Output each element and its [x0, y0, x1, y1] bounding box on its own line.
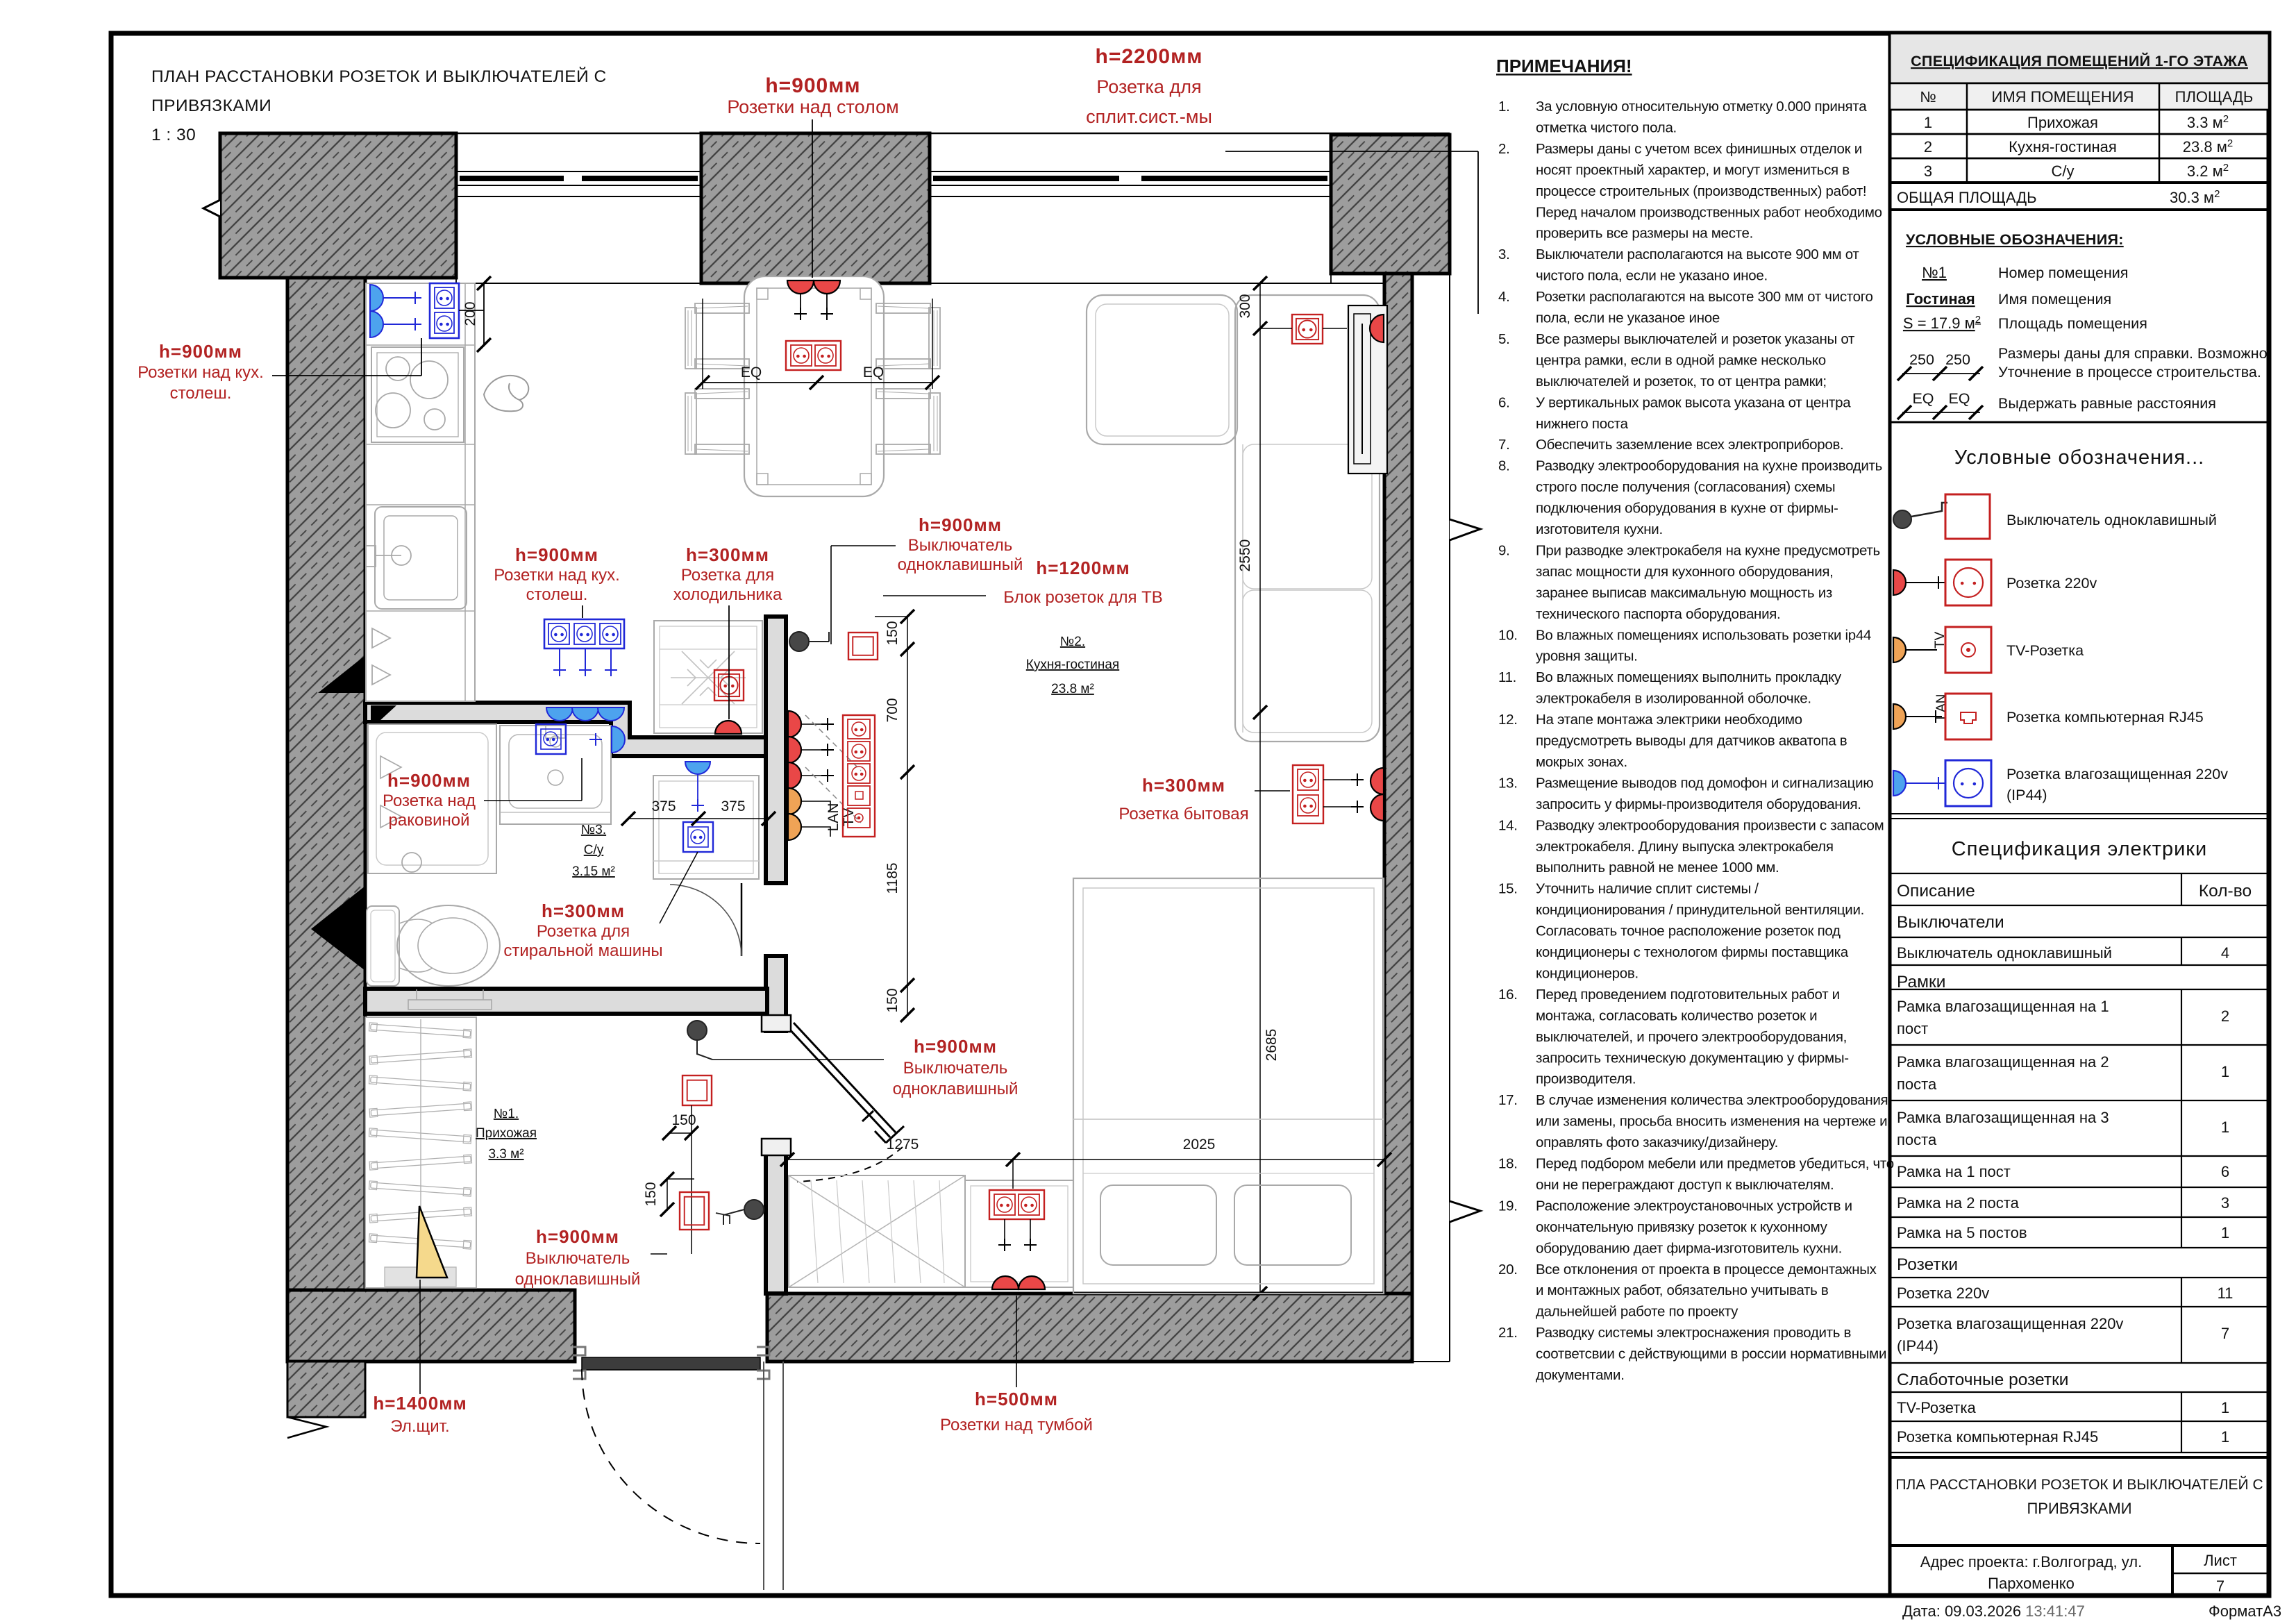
- svg-text:оборудованию дает фирма-изгото: оборудованию дает фирма-изготовитель кух…: [1536, 1240, 1842, 1256]
- svg-text:нижнего поста: нижнего поста: [1536, 416, 1629, 432]
- svg-text:250: 250: [1909, 351, 1934, 368]
- svg-text:13.: 13.: [1498, 775, 1518, 791]
- svg-text:LAN: LAN: [826, 803, 841, 832]
- svg-text:Розетка влагозащищенная 220v: Розетка влагозащищенная 220v: [2006, 766, 2228, 782]
- svg-text:Розетки над тумбой: Розетки над тумбой: [940, 1416, 1093, 1434]
- svg-text:У вертикальных рамок высота ук: У вертикальных рамок высота указана от ц…: [1536, 394, 1851, 410]
- svg-text:одноклавишный: одноклавишный: [515, 1270, 641, 1289]
- svg-text:Площадь помещения: Площадь помещения: [1998, 315, 2147, 332]
- svg-text:19.: 19.: [1498, 1198, 1518, 1214]
- svg-text:поста: поста: [1897, 1131, 1937, 1148]
- svg-text:Рамка на 1 пост: Рамка на 1 пост: [1897, 1163, 2011, 1180]
- svg-text:Выключатель одноклавишный: Выключатель одноклавишный: [1897, 944, 2112, 962]
- svg-text:Эл.щит.: Эл.щит.: [390, 1417, 449, 1436]
- svg-text:h=300мм: h=300мм: [542, 901, 625, 921]
- svg-text:ПРИВЯЗКАМИ: ПРИВЯЗКАМИ: [2027, 1500, 2131, 1517]
- svg-text:23.8 м2: 23.8 м2: [2183, 137, 2233, 156]
- svg-text:Кухня-гостиная: Кухня-гостиная: [1026, 658, 1119, 672]
- svg-text:h=900мм: h=900мм: [536, 1226, 619, 1247]
- svg-text:10.: 10.: [1498, 627, 1518, 643]
- svg-text:Рамка на 2 поста: Рамка на 2 поста: [1897, 1194, 2020, 1212]
- svg-text:стиральной машины: стиральной машины: [503, 941, 662, 960]
- svg-text:изготовителя кухни.: изготовителя кухни.: [1536, 521, 1663, 537]
- svg-text:ПРИМЕЧАНИЯ!: ПРИМЕЧАНИЯ!: [1496, 56, 1632, 76]
- svg-text:выключателей и розеток, то от: выключателей и розеток, то от центра рам…: [1536, 374, 1827, 390]
- svg-text:запросить техническую документ: запросить техническую документацию у фир…: [1536, 1050, 1849, 1066]
- svg-text:ОБЩАЯ ПЛОЩАДЬ: ОБЩАЯ ПЛОЩАДЬ: [1897, 189, 2037, 206]
- svg-text:или замены, просьба вносить из: или замены, просьба вносить изменения на…: [1536, 1114, 1887, 1130]
- svg-text:Выключатели располагаются на в: Выключатели располагаются на высоте 900 …: [1536, 246, 1859, 262]
- svg-text:150: 150: [643, 1182, 659, 1206]
- svg-text:Розетка над: Розетка над: [383, 792, 476, 810]
- svg-text:УСЛОВНЫЕ ОБОЗНАЧЕНИЯ:: УСЛОВНЫЕ ОБОЗНАЧЕНИЯ:: [1906, 231, 2124, 248]
- svg-text:С/у: С/у: [584, 843, 604, 857]
- svg-text:2685: 2685: [1264, 1029, 1280, 1062]
- svg-text:6.: 6.: [1498, 394, 1510, 410]
- svg-text:ПЛА РАССТАНОВКИ РОЗЕТОК И ВЫКЛ: ПЛА РАССТАНОВКИ РОЗЕТОК И ВЫКЛЮЧАТЕЛЕЙ С: [1895, 1476, 2263, 1493]
- svg-text:проверить все размеры на месте: проверить все размеры на месте.: [1536, 226, 1753, 242]
- svg-text:производителя.: производителя.: [1536, 1071, 1636, 1087]
- svg-text:6: 6: [2221, 1163, 2229, 1180]
- svg-text:8.: 8.: [1498, 458, 1510, 474]
- svg-text:h=900мм: h=900мм: [765, 74, 860, 97]
- svg-text:Все отклонения от проекта в пр: Все отклонения от проекта в процессе дем…: [1536, 1262, 1877, 1278]
- svg-text:Розетка для: Розетка для: [681, 566, 774, 585]
- svg-text:Расположение электроустановочн: Расположение электроустановочных устройс…: [1536, 1198, 1852, 1214]
- svg-text:Перед началом производственных: Перед началом производственных работ нео…: [1536, 204, 1882, 220]
- svg-text:15.: 15.: [1498, 881, 1518, 897]
- svg-text:h=900мм: h=900мм: [914, 1036, 997, 1057]
- svg-text:TV-Розетка: TV-Розетка: [1897, 1399, 1976, 1416]
- svg-text:2: 2: [2221, 1007, 2229, 1025]
- svg-text:Размеры даны для справки. Возм: Размеры даны для справки. Возможно: [1998, 345, 2268, 362]
- svg-text:23.8 м²: 23.8 м²: [1051, 682, 1094, 696]
- svg-text:№: №: [1920, 88, 1936, 106]
- svg-text:Размещение выводов под домофон: Размещение выводов под домофон и сигнали…: [1536, 775, 1873, 791]
- svg-text:250: 250: [1945, 351, 1970, 368]
- svg-text:Имя помещения: Имя помещения: [1998, 291, 2111, 308]
- svg-text:процессе строительных (произво: процессе строительных (производственных)…: [1536, 183, 1866, 199]
- svg-text:700: 700: [885, 698, 900, 722]
- svg-text:Разводку системы электроснажен: Разводку системы электроснажения проводи…: [1536, 1325, 1851, 1341]
- svg-text:одноклавишный: одноклавишный: [898, 555, 1023, 574]
- svg-text:S = 17.9 м2: S = 17.9 м2: [1903, 314, 1981, 332]
- svg-text:150: 150: [885, 988, 900, 1012]
- svg-text:Выключатель: Выключатель: [908, 536, 1013, 555]
- svg-text:монтажа, согласовать количеств: монтажа, согласовать количество розеток …: [1536, 1007, 1817, 1023]
- svg-text:EQ: EQ: [863, 365, 884, 380]
- svg-text:TV-Розетка: TV-Розетка: [2006, 642, 2084, 659]
- svg-text:Уточнение в процессе строитель: Уточнение в процессе строительства.: [1998, 364, 2261, 380]
- svg-text:Розетка компьютерная RJ45: Розетка компьютерная RJ45: [2006, 709, 2204, 726]
- svg-text:подключения оборудования в кух: подключения оборудования в кухне от фирм…: [1536, 501, 1838, 517]
- svg-text:кондиционеров.: кондиционеров.: [1536, 965, 1639, 981]
- svg-text:3.15 м²: 3.15 м²: [572, 864, 615, 879]
- svg-text:пост: пост: [1897, 1020, 1928, 1037]
- svg-text:3: 3: [1924, 162, 1932, 180]
- svg-text:18.: 18.: [1498, 1156, 1518, 1172]
- svg-text:выключателей, и прочего электр: выключателей, и прочего электрооборудова…: [1536, 1029, 1847, 1045]
- svg-text:носят проектный характер, и мо: носят проектный характер, и могут измени…: [1536, 162, 1850, 178]
- svg-text:раковиной: раковиной: [389, 811, 470, 830]
- svg-text:Розетка бытовая: Розетка бытовая: [1118, 805, 1248, 823]
- svg-text:1: 1: [2221, 1224, 2229, 1241]
- svg-text:h=900мм: h=900мм: [159, 341, 242, 362]
- svg-text:1 : 30: 1 : 30: [151, 126, 196, 144]
- svg-text:h=1400мм: h=1400мм: [373, 1393, 467, 1414]
- svg-text:1: 1: [2221, 1119, 2229, 1136]
- svg-text:h=900мм: h=900мм: [387, 770, 471, 791]
- svg-text:7: 7: [2221, 1325, 2229, 1342]
- svg-text:окончательную привязку розеток: окончательную привязку розеток к кухонно…: [1536, 1219, 1828, 1235]
- svg-text:11: 11: [2218, 1284, 2234, 1302]
- svg-text:строго после получения (соглас: строго после получения (согласования) сх…: [1536, 479, 1835, 495]
- svg-text:Рамка на 5 постов: Рамка на 5 постов: [1897, 1224, 2027, 1241]
- svg-text:2: 2: [1924, 138, 1932, 156]
- svg-text:3.3 м²: 3.3 м²: [488, 1147, 523, 1162]
- svg-text:14.: 14.: [1498, 817, 1518, 833]
- svg-text:Спецификация электрики: Спецификация электрики: [1952, 838, 2207, 860]
- svg-text:12.: 12.: [1498, 712, 1518, 728]
- svg-text:3.: 3.: [1498, 246, 1510, 262]
- svg-text:выполнить равной не менее 1000: выполнить равной не менее 1000 мм.: [1536, 860, 1779, 876]
- svg-text:Перед проведением подготовител: Перед проведением подготовительных работ…: [1536, 987, 1840, 1003]
- svg-text:Рамка влагозащищенная на 3: Рамка влагозащищенная на 3: [1897, 1109, 2109, 1126]
- svg-text:Выключатели: Выключатели: [1897, 913, 2004, 932]
- svg-text:Размеры даны с учетом всех фин: Размеры даны с учетом всех финишных отде…: [1536, 141, 1862, 157]
- svg-text:Розетки располагаются на высот: Розетки располагаются на высоте 300 мм о…: [1536, 289, 1873, 305]
- svg-text:(IP44): (IP44): [2006, 787, 2047, 803]
- svg-text:столеш.: столеш.: [526, 585, 588, 604]
- svg-text:375: 375: [651, 798, 676, 814]
- svg-text:9.: 9.: [1498, 542, 1510, 558]
- svg-text:1: 1: [2221, 1399, 2229, 1416]
- svg-text:1185: 1185: [885, 862, 900, 894]
- svg-text:В случае изменения количества: В случае изменения количества электрообо…: [1536, 1092, 1888, 1108]
- svg-text:столеш.: столеш.: [170, 384, 232, 403]
- svg-text:Слаботочные розетки: Слаботочные розетки: [1897, 1371, 2068, 1389]
- svg-text:h=2200мм: h=2200мм: [1096, 45, 1203, 68]
- svg-text:3.3 м2: 3.3 м2: [2187, 113, 2229, 131]
- svg-text:Розетка 220v: Розетка 220v: [1897, 1284, 1989, 1302]
- svg-text:Условные обозначения...: Условные обозначения...: [1954, 446, 2204, 469]
- svg-text:мокрых зонах.: мокрых зонах.: [1536, 754, 1627, 770]
- svg-text:отметка чистого пола.: отметка чистого пола.: [1536, 119, 1677, 135]
- svg-text:Розетка для: Розетка для: [537, 922, 630, 941]
- svg-text:EQ: EQ: [741, 365, 762, 380]
- svg-text:3: 3: [2221, 1194, 2229, 1212]
- svg-text:200: 200: [462, 301, 478, 326]
- svg-text:1275: 1275: [887, 1137, 919, 1153]
- svg-text:№3.: №3.: [581, 823, 606, 837]
- svg-text:пола, если не указаное иное: пола, если не указаное иное: [1536, 310, 1720, 326]
- svg-text:2.: 2.: [1498, 141, 1510, 157]
- svg-text:(IP44): (IP44): [1897, 1337, 1938, 1355]
- svg-text:ИМЯ ПОМЕЩЕНИЯ: ИМЯ ПОМЕЩЕНИЯ: [1992, 88, 2134, 106]
- svg-text:Выключатель: Выключатель: [903, 1059, 1008, 1078]
- svg-text:7.: 7.: [1498, 437, 1510, 453]
- svg-text:№1.: №1.: [494, 1107, 519, 1121]
- svg-text:3.2 м2: 3.2 м2: [2187, 162, 2229, 180]
- svg-text:заранее выписав максимальную м: заранее выписав максимальную мощность из: [1536, 585, 1832, 601]
- svg-text:1: 1: [2221, 1428, 2229, 1446]
- svg-text:h=1200мм: h=1200мм: [1036, 558, 1130, 578]
- svg-text:центра рамки, если в одной рам: центра рамки, если в одной рамке несколь…: [1536, 352, 1826, 368]
- svg-text:№2.: №2.: [1060, 635, 1085, 649]
- svg-text:30.3 м2: 30.3 м2: [2170, 188, 2220, 206]
- svg-text:Розетки над кух.: Розетки над кух.: [494, 566, 620, 585]
- svg-text:Розетка для: Розетка для: [1096, 76, 1201, 97]
- svg-text:Выдержать равные расстояния: Выдержать равные расстояния: [1998, 395, 2216, 412]
- svg-text:Номер помещения: Номер помещения: [1998, 265, 2128, 281]
- svg-text:запросить у фирмы-производител: запросить у фирмы-производителя оборудов…: [1536, 796, 1861, 812]
- svg-text:7: 7: [2216, 1577, 2224, 1595]
- svg-text:они не переграждают доступ к в: они не переграждают доступ к выключателя…: [1536, 1177, 1834, 1193]
- svg-text:одноклавишный: одноклавишный: [893, 1080, 1019, 1098]
- svg-text:Разводку электрооборудования н: Разводку электрооборудования на кухне пр…: [1536, 458, 1882, 474]
- svg-text:17.: 17.: [1498, 1092, 1518, 1108]
- svg-text:Блок розеток для ТВ: Блок розеток для ТВ: [1003, 588, 1163, 607]
- svg-text:уровня защиты.: уровня защиты.: [1536, 648, 1638, 664]
- svg-text:кондиционирования / принудител: кондиционирования / принудительной венти…: [1536, 902, 1864, 918]
- svg-text:ФорматА3: ФорматА3: [2209, 1602, 2281, 1620]
- svg-text:Розетки: Розетки: [1897, 1255, 1958, 1274]
- svg-text:5.: 5.: [1498, 331, 1510, 347]
- svg-text:11.: 11.: [1498, 669, 1516, 685]
- svg-text:Рамка влагозащищенная на 1: Рамка влагозащищенная на 1: [1897, 998, 2109, 1015]
- svg-text:375: 375: [721, 798, 745, 814]
- svg-text:h=300мм: h=300мм: [1142, 775, 1225, 796]
- svg-text:2025: 2025: [1183, 1137, 1216, 1153]
- svg-text:Пархоменко: Пархоменко: [1988, 1575, 2075, 1592]
- svg-text:№1: №1: [1922, 264, 1947, 281]
- svg-text:20.: 20.: [1498, 1262, 1518, 1278]
- svg-text:h=900мм: h=900мм: [515, 544, 598, 565]
- svg-text:запас мощности для кухонного о: запас мощности для кухонного оборудовани…: [1536, 564, 1834, 580]
- svg-text:поста: поста: [1897, 1075, 1937, 1093]
- svg-text:h=500мм: h=500мм: [975, 1389, 1058, 1409]
- svg-text:21.: 21.: [1498, 1325, 1518, 1341]
- svg-text:Все размеры выключателей и роз: Все размеры выключателей и розеток указа…: [1536, 331, 1855, 347]
- svg-text:Разводку электрооборудования п: Разводку электрооборудования произвести …: [1536, 817, 1884, 833]
- svg-text:Описание: Описание: [1897, 882, 1975, 901]
- svg-text:150: 150: [885, 621, 900, 645]
- svg-text:Гостиная: Гостиная: [1906, 290, 1975, 308]
- svg-text:Дата: 09.03.2026 13:41:47: Дата: 09.03.2026 13:41:47: [1902, 1602, 2085, 1620]
- svg-text:чистого пола, если не указано: чистого пола, если не указано иное.: [1536, 268, 1768, 284]
- svg-text:кондиционеры с технологом фирм: кондиционеры с технологом фирмы поставщи…: [1536, 944, 1849, 960]
- svg-text:Розетки над столом: Розетки над столом: [727, 97, 898, 117]
- svg-text:Во влажных помещениях использо: Во влажных помещениях использовать розет…: [1536, 627, 1871, 643]
- svg-text:оправлять фото заказчику/дизай: оправлять фото заказчику/дизайнеру.: [1536, 1135, 1778, 1150]
- svg-text:Кол-во: Кол-во: [2199, 882, 2252, 901]
- svg-text:16.: 16.: [1498, 987, 1518, 1003]
- svg-text:холодильника: холодильника: [673, 585, 782, 604]
- svg-text:Обеспечить заземление всех эле: Обеспечить заземление всех электроприбор…: [1536, 437, 1843, 453]
- svg-text:Выключатель: Выключатель: [526, 1249, 630, 1268]
- svg-text:Кухня-гостиная: Кухня-гостиная: [2009, 138, 2117, 156]
- svg-text:предусмотреть выводы для датчи: предусмотреть выводы для датчиков аквато…: [1536, 733, 1847, 749]
- svg-text:При разводке электрокабеля на: При разводке электрокабеля на кухне пред…: [1536, 542, 1880, 558]
- svg-text:Рамка влагозащищенная на 2: Рамка влагозащищенная на 2: [1897, 1053, 2109, 1071]
- svg-text:Согласовать точное расположени: Согласовать точное расположение розеток …: [1536, 923, 1841, 939]
- svg-text:Адрес проекта: г.Волгоград, ул: Адрес проекта: г.Волгоград, ул.: [1920, 1553, 2142, 1571]
- svg-text:4.: 4.: [1498, 289, 1510, 305]
- svg-text:ПЛАН РАССТАНОВКИ РОЗЕТОК И ВЫК: ПЛАН РАССТАНОВКИ РОЗЕТОК И ВЫКЛЮЧАТЕЛЕЙ …: [151, 67, 607, 86]
- svg-text:документами.: документами.: [1536, 1367, 1625, 1383]
- svg-text:ПРИВЯЗКАМИ: ПРИВЯЗКАМИ: [151, 97, 271, 115]
- svg-text:электрокабеля. Длину выпуска э: электрокабеля. Длину выпуска электрокабе…: [1536, 839, 1834, 855]
- svg-text:LAN: LAN: [1934, 694, 1949, 720]
- svg-text:электрокабеля в изолированной: электрокабеля в изолированной оболочке.: [1536, 691, 1811, 707]
- svg-text:Уточнить наличие сплит системы: Уточнить наличие сплит системы /: [1536, 881, 1759, 897]
- svg-text:Перед подбором мебели или пред: Перед подбором мебели или предметов убед…: [1536, 1156, 1894, 1172]
- svg-text:соответсвии с действующими в р: соответсвии с действующими в россии норм…: [1536, 1346, 1886, 1362]
- svg-text:На этапе монтажа электрики нео: На этапе монтажа электрики необходимо: [1536, 712, 1802, 728]
- svg-text:1: 1: [1924, 114, 1932, 131]
- svg-text:и монтажных работ, обязательно: и монтажных работ, обязательно учитывать…: [1536, 1282, 1829, 1298]
- svg-text:h=300мм: h=300мм: [686, 544, 769, 565]
- svg-text:Розетка компьютерная RJ45: Розетка компьютерная RJ45: [1897, 1428, 2098, 1446]
- svg-text:дальнейшей работе по проекту: дальнейшей работе по проекту: [1536, 1304, 1738, 1320]
- svg-text:4: 4: [2221, 944, 2229, 962]
- svg-text:h=900мм: h=900мм: [919, 514, 1002, 535]
- svg-text:ПЛОЩАДЬ: ПЛОЩАДЬ: [2175, 88, 2254, 106]
- svg-text:Лист: Лист: [2204, 1552, 2237, 1569]
- svg-text:Розетка 220v: Розетка 220v: [2006, 575, 2097, 592]
- svg-text:С/у: С/у: [2052, 162, 2075, 180]
- svg-text:Прихожая: Прихожая: [2027, 114, 2098, 131]
- svg-text:Розетки над кух.: Розетки над кух.: [137, 363, 264, 382]
- svg-text:2550: 2550: [1237, 539, 1253, 572]
- svg-text:сплит.сист.-мы: сплит.сист.-мы: [1086, 106, 1212, 127]
- svg-text:Прихожая: Прихожая: [476, 1126, 537, 1141]
- svg-text:Выключатель одноклавишный: Выключатель одноклавишный: [2006, 512, 2217, 528]
- svg-text:СПЕЦИФИКАЦИЯ ПОМЕЩЕНИЙ 1-ГО ЭТ: СПЕЦИФИКАЦИЯ ПОМЕЩЕНИЙ 1-ГО ЭТАЖА: [1911, 52, 2248, 69]
- svg-text:Во влажных помещениях выполнит: Во влажных помещениях выполнить прокладк…: [1536, 669, 1842, 685]
- svg-text:EQ: EQ: [1948, 390, 1970, 407]
- svg-text:300: 300: [1237, 294, 1253, 318]
- svg-text:технического паспорта оборудов: технического паспорта оборудования.: [1536, 606, 1780, 622]
- svg-text:EQ: EQ: [1912, 390, 1934, 407]
- svg-text:1: 1: [2221, 1063, 2229, 1080]
- svg-text:За условную относительную отме: За условную относительную отметку 0.000 …: [1536, 99, 1867, 115]
- svg-text:1.: 1.: [1498, 99, 1510, 115]
- svg-text:Розетка влагозащищенная 220v: Розетка влагозащищенная 220v: [1897, 1315, 2123, 1332]
